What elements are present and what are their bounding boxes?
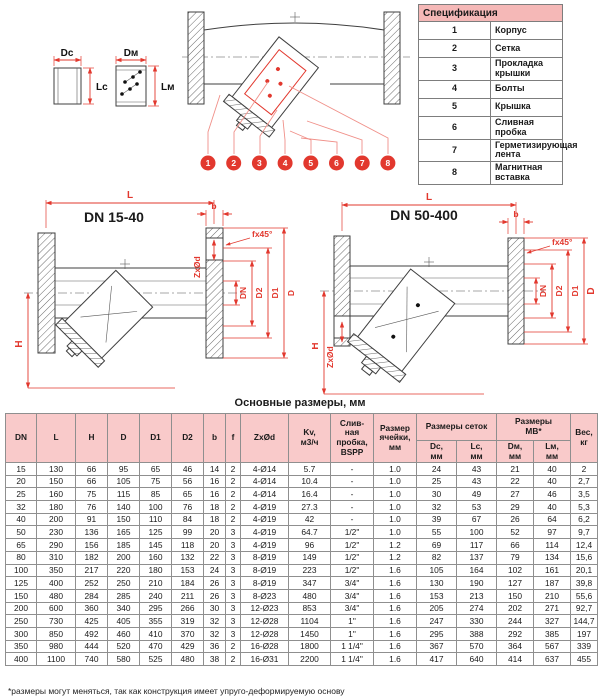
spec-table-title: Спецификация	[419, 5, 563, 22]
callout-5-number: 5	[308, 158, 313, 168]
table-cell: 5,3	[571, 501, 598, 514]
table-cell: 190	[457, 577, 497, 590]
table-cell: 117	[457, 539, 497, 552]
dm-label: Dм	[124, 48, 139, 59]
dim-h: H	[312, 342, 321, 349]
table-cell: 223	[289, 564, 331, 577]
table-cell: 340	[108, 602, 140, 615]
table-cell: 18	[204, 513, 226, 526]
col-drain-plug: Слив- ная пробка, BSPP	[331, 414, 374, 463]
table-row: 25073042540535531932312-Ø2811041"1.62473…	[6, 615, 598, 628]
col-zxod: ZxØd	[241, 414, 289, 463]
table-cell: 8-Ø19	[241, 564, 289, 577]
table-cell: 130	[417, 577, 457, 590]
table-cell: 385	[534, 627, 571, 640]
table-cell: 134	[534, 551, 571, 564]
table-cell: 12-Ø23	[241, 602, 289, 615]
lc-label: Lc	[96, 82, 108, 93]
table-cell: 20,1	[571, 564, 598, 577]
table-cell: -	[331, 501, 374, 514]
table-cell: 1/2"	[331, 564, 374, 577]
table-cell: 25	[417, 475, 457, 488]
table-cell: 125	[6, 577, 37, 590]
spec-row: 1Корпус	[419, 22, 563, 40]
table-cell: 40	[534, 501, 571, 514]
table-cell: 92,7	[571, 602, 598, 615]
table-cell: 10.4	[289, 475, 331, 488]
table-cell: 3	[226, 551, 241, 564]
spec-item-label: Крышка	[491, 98, 563, 116]
table-cell: 100	[140, 501, 172, 514]
table-cell: 1/2"	[331, 551, 374, 564]
table-cell: 244	[497, 615, 534, 628]
table-cell: 8-Ø23	[241, 589, 289, 602]
table-cell: 4-Ø14	[241, 463, 289, 476]
table-cell: 32	[204, 627, 226, 640]
table-cell: 405	[108, 615, 140, 628]
table-cell: 360	[76, 602, 108, 615]
table-cell: 24	[204, 564, 226, 577]
spec-item-label: Болты	[491, 80, 563, 98]
table-cell: 161	[534, 564, 571, 577]
table-cell: 16-Ø31	[241, 653, 289, 666]
table-cell: 205	[417, 602, 457, 615]
table-cell: 220	[108, 564, 140, 577]
table-cell: 26	[204, 589, 226, 602]
right-flange	[384, 12, 400, 104]
table-cell: 850	[37, 627, 76, 640]
mini-dimension-diagrams: Dc Lc Dм Lм	[22, 28, 182, 140]
col-dc: Dc, мм	[417, 441, 457, 463]
table-cell: 43	[457, 463, 497, 476]
table-cell: 1 1/4"	[331, 640, 374, 653]
table-cell: 211	[172, 589, 204, 602]
table-cell: 200	[37, 513, 76, 526]
table-cell: 22	[204, 551, 226, 564]
table-cell: 118	[172, 539, 204, 552]
dim-d2: D2	[554, 285, 564, 296]
table-cell: 350	[37, 564, 76, 577]
table-cell: 67	[457, 513, 497, 526]
table-cell: 75	[76, 488, 108, 501]
table-cell: 16-Ø28	[241, 640, 289, 653]
table-cell: 250	[6, 615, 37, 628]
col-dm: Dм, мм	[497, 441, 534, 463]
callout-2-number: 2	[231, 158, 236, 168]
table-row: 251607511585651624-Ø1416.4-1.0304927463,…	[6, 488, 598, 501]
table-cell: 637	[534, 653, 571, 666]
table-cell: 39	[417, 513, 457, 526]
table-cell: 4-Ø19	[241, 501, 289, 514]
table-cell: 82	[417, 551, 457, 564]
table-cell: 76	[172, 501, 204, 514]
spec-row: 6Сливная пробка	[419, 116, 563, 139]
callout-6-number: 6	[334, 158, 339, 168]
spec-item-label: Сливная пробка	[491, 116, 563, 139]
table-cell: 136	[76, 526, 108, 539]
callout-4-number: 4	[283, 158, 288, 168]
table-cell: 12,4	[571, 539, 598, 552]
table-cell: -	[331, 463, 374, 476]
table-cell: 295	[140, 602, 172, 615]
table-cell: 100	[457, 526, 497, 539]
table-cell: 150	[108, 513, 140, 526]
dim-d: D	[286, 290, 296, 296]
table-cell: 355	[140, 615, 172, 628]
table-cell: 202	[497, 602, 534, 615]
dim-d2: D2	[254, 287, 264, 298]
col-d1: D1	[140, 414, 172, 463]
table-row: 35098044452047042936216-Ø2818001 1/4"1.6…	[6, 640, 598, 653]
dim-d1: D1	[270, 287, 280, 298]
table-cell: 145	[140, 539, 172, 552]
table-cell: 153	[417, 589, 457, 602]
table-row: 1254002522502101842638-Ø193473/4"1.61301…	[6, 577, 598, 590]
table-cell: 410	[140, 627, 172, 640]
table-cell: 1.6	[374, 627, 417, 640]
table-cell: 1/2"	[331, 539, 374, 552]
table-cell: 1"	[331, 615, 374, 628]
table-cell: 8-Ø19	[241, 551, 289, 564]
table-cell: 27	[497, 488, 534, 501]
spec-item-label: Прокладка крышки	[491, 58, 563, 81]
table-cell: 16.4	[289, 488, 331, 501]
table-cell: 364	[497, 640, 534, 653]
table-cell: 2	[226, 640, 241, 653]
table-cell: 480	[289, 589, 331, 602]
table-cell: 1.0	[374, 463, 417, 476]
table-cell: 567	[534, 640, 571, 653]
table-cell: 80	[6, 551, 37, 564]
dim-zxod: ZxØd	[325, 346, 335, 368]
table-cell: 25	[6, 488, 37, 501]
table-cell: 46	[534, 488, 571, 501]
table-cell: 185	[108, 539, 140, 552]
table-cell: 6,2	[571, 513, 598, 526]
table-cell: 200	[108, 551, 140, 564]
table-cell: 730	[37, 615, 76, 628]
table-cell: 184	[172, 577, 204, 590]
table-cell: 350	[6, 640, 37, 653]
table-cell: 85	[140, 488, 172, 501]
table-cell: 144,7	[571, 615, 598, 628]
table-row: 400110074058052548038216-Ø3122001 1/4"1.…	[6, 653, 598, 666]
table-cell: 65	[6, 539, 37, 552]
table-cell: 339	[571, 640, 598, 653]
table-cell: 444	[76, 640, 108, 653]
callout-3-number: 3	[257, 158, 262, 168]
spec-item-label: Герметизирующая лента	[491, 139, 563, 162]
table-cell: -	[331, 488, 374, 501]
table-cell: 292	[497, 627, 534, 640]
table-cell: 1.6	[374, 615, 417, 628]
table-cell: 2,7	[571, 475, 598, 488]
table-cell: 180	[37, 501, 76, 514]
table-row: 15130669565461424-Ø145.7-1.0244321402	[6, 463, 598, 476]
table-cell: 180	[140, 564, 172, 577]
table-cell: 319	[172, 615, 204, 628]
table-cell: 21	[497, 463, 534, 476]
table-cell: 1.0	[374, 501, 417, 514]
vent-cross	[290, 12, 300, 22]
table-cell: 274	[457, 602, 497, 615]
table-cell: 388	[457, 627, 497, 640]
table-row: 3218076140100761824-Ø1927.3-1.0325329405…	[6, 501, 598, 514]
table-cell: 367	[417, 640, 457, 653]
table-cell: 65	[172, 488, 204, 501]
callout-8-number: 8	[386, 158, 391, 168]
table-cell: 347	[289, 577, 331, 590]
table-cell: 3	[226, 526, 241, 539]
table-cell: 1104	[289, 615, 331, 628]
table-cell: 29	[497, 501, 534, 514]
table-cell: 9,7	[571, 526, 598, 539]
footnote: *размеры могут меняться, так как констру…	[8, 686, 345, 696]
table-cell: 165	[108, 526, 140, 539]
table-cell: 100	[6, 564, 37, 577]
table-cell: 3	[226, 602, 241, 615]
table-cell: 55,6	[571, 589, 598, 602]
datasheet-page: Dc Lc Dм Lм	[0, 0, 600, 700]
table-cell: 4-Ø19	[241, 539, 289, 552]
table-cell: 43	[457, 475, 497, 488]
dim-f45: fx45°	[252, 229, 273, 239]
col-kv: Kv, м3/ч	[289, 414, 331, 463]
spec-item-number: 3	[419, 58, 491, 81]
spec-row: 3Прокладка крышки	[419, 58, 563, 81]
table-cell: 40	[534, 475, 571, 488]
table-cell: 600	[37, 602, 76, 615]
dc-label: Dc	[61, 48, 74, 59]
table-cell: 66	[497, 539, 534, 552]
table-cell: 1.6	[374, 589, 417, 602]
col-weight: Вес, кг	[571, 414, 598, 463]
table-cell: 640	[457, 653, 497, 666]
table-cell: 140	[108, 501, 140, 514]
table-cell: 16	[204, 488, 226, 501]
table-cell: 97	[534, 526, 571, 539]
table-cell: 1.0	[374, 513, 417, 526]
table-cell: 27.3	[289, 501, 331, 514]
table-cell: 30	[417, 488, 457, 501]
table-cell: 4-Ø19	[241, 526, 289, 539]
table-cell: 20	[204, 526, 226, 539]
table-cell: -	[331, 513, 374, 526]
table-cell: 1450	[289, 627, 331, 640]
table-cell: 55	[417, 526, 457, 539]
table-cell: 230	[37, 526, 76, 539]
table-cell: 76	[76, 501, 108, 514]
table-cell: 52	[497, 526, 534, 539]
spec-item-label: Корпус	[491, 22, 563, 40]
dim-f45: fx45°	[552, 237, 573, 247]
table-cell: 1.0	[374, 475, 417, 488]
table-cell: 15	[6, 463, 37, 476]
table-cell: 16	[204, 475, 226, 488]
table-row: 20060036034029526630312-Ø238533/4"1.6205…	[6, 602, 598, 615]
table-cell: 182	[76, 551, 108, 564]
table-cell: 330	[457, 615, 497, 628]
table-cell: 1.6	[374, 564, 417, 577]
dim-dn: DN	[238, 287, 248, 299]
strainer-pocket	[217, 34, 322, 145]
table-cell: 8-Ø19	[241, 577, 289, 590]
table-cell: 492	[76, 627, 108, 640]
table-cell: 26	[497, 513, 534, 526]
spec-item-number: 6	[419, 116, 491, 139]
left-flange	[188, 12, 204, 104]
table-cell: 12-Ø28	[241, 627, 289, 640]
table-cell: 2	[226, 653, 241, 666]
table-cell: 3/4"	[331, 602, 374, 615]
table-cell: 12-Ø28	[241, 615, 289, 628]
table-cell: 15,6	[571, 551, 598, 564]
table-cell: 20	[6, 475, 37, 488]
table-cell: 99	[172, 526, 204, 539]
table-cell: 300	[6, 627, 37, 640]
table-cell: 290	[37, 539, 76, 552]
table-cell: 66	[76, 475, 108, 488]
spec-row: 2Сетка	[419, 40, 563, 58]
screen-sketch	[54, 68, 81, 104]
table-cell: 22	[497, 475, 534, 488]
table-cell: 187	[534, 577, 571, 590]
table-cell: 40	[534, 463, 571, 476]
table-cell: 3	[226, 577, 241, 590]
col-h: H	[76, 414, 108, 463]
table-cell: 150	[6, 589, 37, 602]
table-cell: 50	[6, 526, 37, 539]
table-cell: 4-Ø19	[241, 513, 289, 526]
table-cell: 327	[534, 615, 571, 628]
table-cell: 1.2	[374, 539, 417, 552]
table-cell: 266	[172, 602, 204, 615]
table-cell: 740	[76, 653, 108, 666]
table-cell: 149	[289, 551, 331, 564]
col-group-mv: Размеры МВ*	[497, 414, 571, 441]
table-cell: 1.0	[374, 488, 417, 501]
table-cell: 1.6	[374, 602, 417, 615]
table-cell: 250	[108, 577, 140, 590]
dim-d1: D1	[570, 285, 580, 296]
table-cell: 110	[140, 513, 172, 526]
table-cell: 271	[534, 602, 571, 615]
table-cell: 525	[140, 653, 172, 666]
dim-dn: DN	[538, 285, 548, 297]
table-cell: 310	[37, 551, 76, 564]
table-cell: 2	[226, 488, 241, 501]
table-cell: 24	[417, 463, 457, 476]
table-cell: 200	[6, 602, 37, 615]
table-cell: 414	[497, 653, 534, 666]
table-cell: 3	[226, 589, 241, 602]
drawing-dn50-400: DN 50-400 L b fx45° ZxØd DN	[312, 176, 600, 404]
callout-7-number: 7	[360, 158, 365, 168]
table-cell: 127	[497, 577, 534, 590]
table-cell: 64.7	[289, 526, 331, 539]
table-cell: 3	[226, 627, 241, 640]
col-mesh-size: Размер ячейки, мм	[374, 414, 417, 463]
table-cell: 284	[76, 589, 108, 602]
table-cell: 32	[204, 615, 226, 628]
table-cell: 96	[289, 539, 331, 552]
table-cell: 49	[457, 488, 497, 501]
table-cell: 2200	[289, 653, 331, 666]
table-row: 803101822001601322238-Ø191491/2"1.282137…	[6, 551, 598, 564]
table-cell: 105	[417, 564, 457, 577]
table-cell: 2	[226, 513, 241, 526]
table-cell: 32	[6, 501, 37, 514]
table-cell: 42	[289, 513, 331, 526]
spec-item-number: 2	[419, 40, 491, 58]
table-cell: 20	[204, 539, 226, 552]
table-cell: 150	[497, 589, 534, 602]
col-d2: D2	[172, 414, 204, 463]
table-cell: 425	[76, 615, 108, 628]
col-d: D	[108, 414, 140, 463]
spec-row: 5Крышка	[419, 98, 563, 116]
table-cell: 164	[457, 564, 497, 577]
table-cell: 285	[108, 589, 140, 602]
table-cell: 197	[571, 627, 598, 640]
table-cell: 2	[226, 463, 241, 476]
table-row: 1003502172201801532438-Ø192231/2"1.61051…	[6, 564, 598, 577]
drawing-title-right: DN 50-400	[390, 207, 458, 223]
table-cell: 65	[140, 463, 172, 476]
dim-l: L	[426, 192, 432, 203]
col-lm: Lм, мм	[534, 441, 571, 463]
table-cell: 480	[37, 589, 76, 602]
table-cell: 79	[497, 551, 534, 564]
dim-zxod: ZxØd	[192, 256, 202, 278]
table-cell: 240	[140, 589, 172, 602]
table-cell: -	[331, 475, 374, 488]
table-cell: 125	[140, 526, 172, 539]
table-cell: 1.6	[374, 640, 417, 653]
table-cell: 53	[457, 501, 497, 514]
table-cell: 3,5	[571, 488, 598, 501]
table-cell: 39,8	[571, 577, 598, 590]
table-cell: 247	[417, 615, 457, 628]
table-cell: 156	[76, 539, 108, 552]
table-cell: 66	[76, 463, 108, 476]
table-cell: 3/4"	[331, 577, 374, 590]
table-cell: 4-Ø14	[241, 488, 289, 501]
table-cell: 5.7	[289, 463, 331, 476]
table-cell: 137	[457, 551, 497, 564]
table-row: 1504802842852402112638-Ø234803/4"1.61532…	[6, 589, 598, 602]
dim-l: L	[127, 190, 133, 201]
col-dn: DN	[6, 414, 37, 463]
table-cell: 150	[37, 475, 76, 488]
dim-b: b	[513, 209, 518, 219]
table-cell: 102	[497, 564, 534, 577]
table-row: 652901561851451182034-Ø19961/2"1.2691176…	[6, 539, 598, 552]
callout-1-number: 1	[206, 158, 211, 168]
dim-d: D	[586, 287, 597, 294]
col-b: b	[204, 414, 226, 463]
table-cell: 1800	[289, 640, 331, 653]
table-cell: 160	[37, 488, 76, 501]
table-cell: 1.2	[374, 551, 417, 564]
col-lc: Lc, мм	[457, 441, 497, 463]
table-cell: 26	[204, 577, 226, 590]
table-cell: 455	[571, 653, 598, 666]
table-cell: 400	[37, 577, 76, 590]
dimensions-table: DN L H D D1 D2 b f ZxØd Kv, м3/ч Слив- н…	[5, 413, 598, 666]
magnet-insert-sketch	[116, 66, 146, 106]
table-cell: 2	[571, 463, 598, 476]
